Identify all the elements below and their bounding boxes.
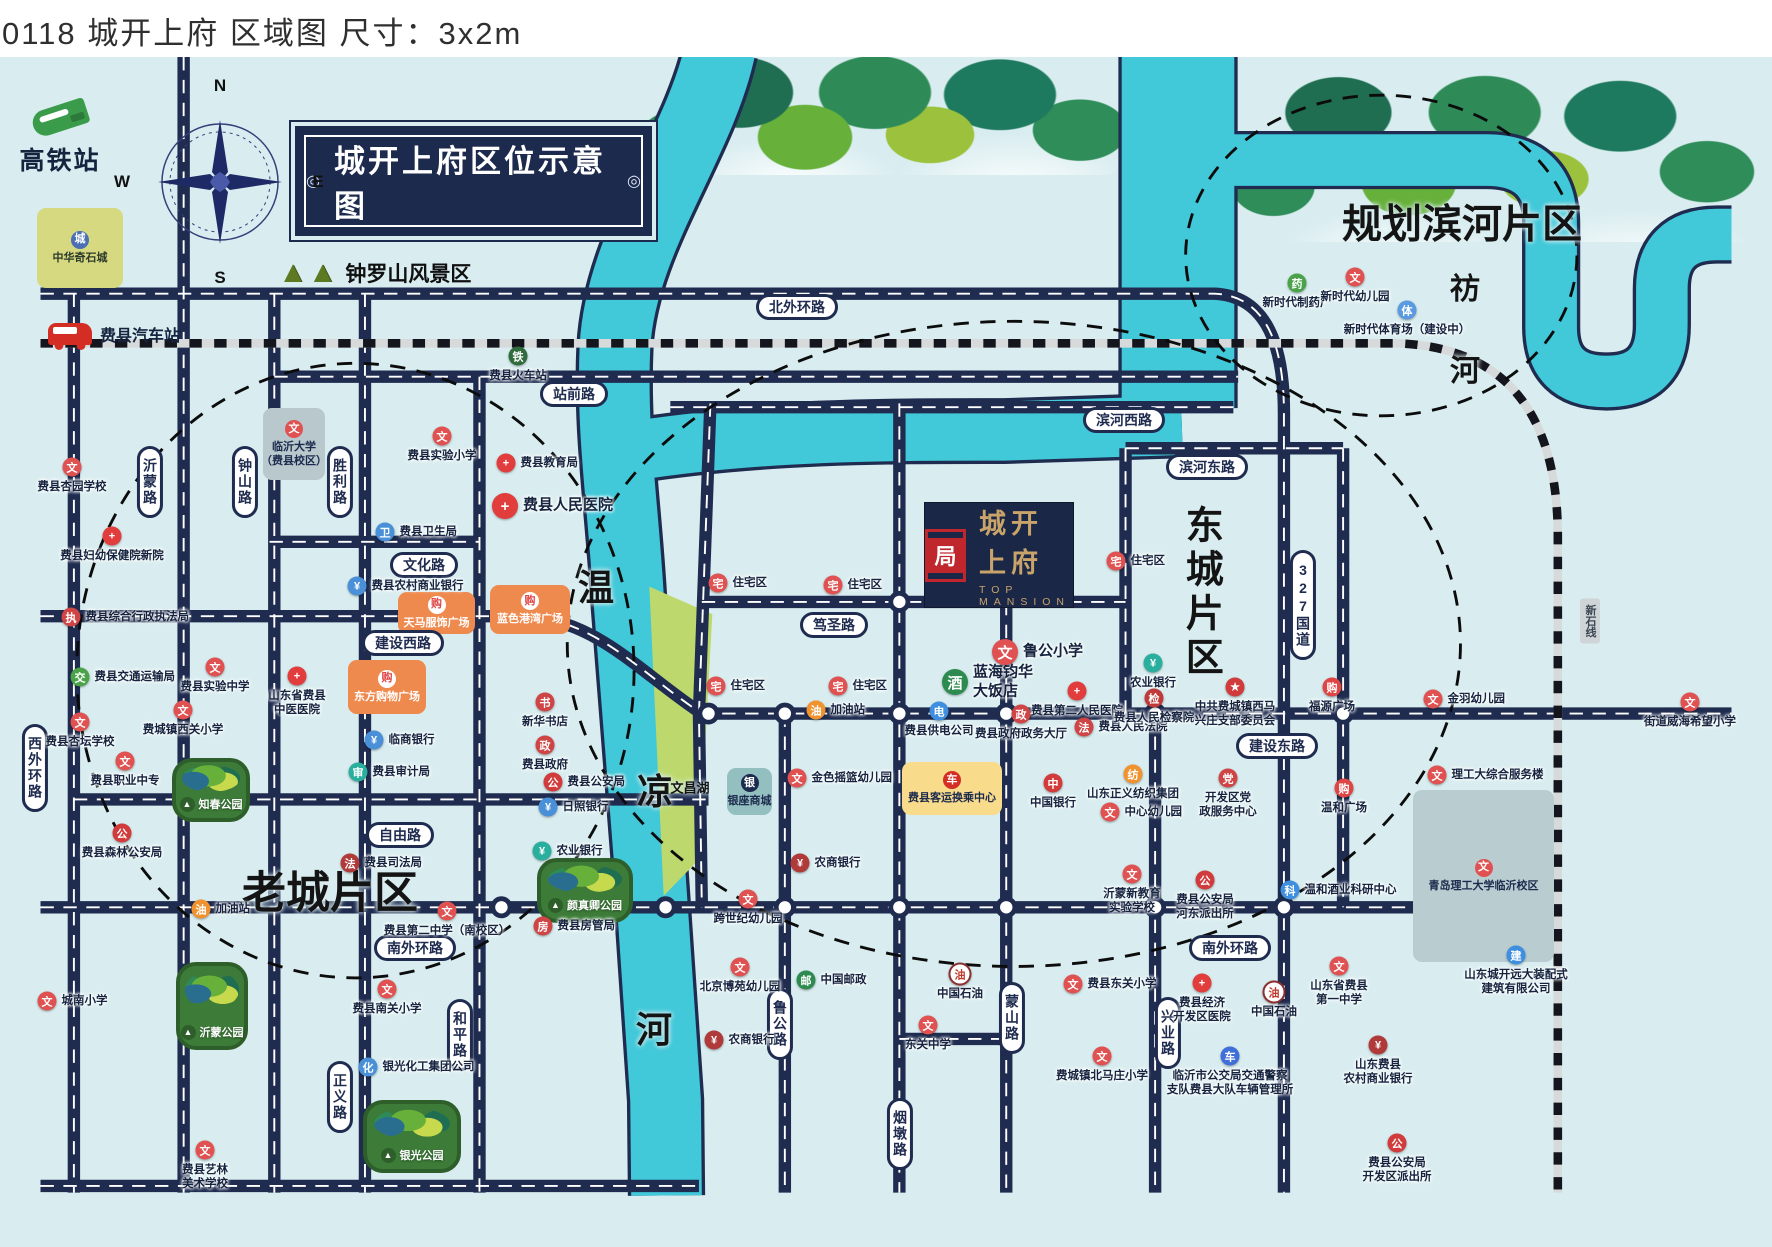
poi-label: 费县房管局	[558, 919, 616, 933]
region-label: 老城片区	[242, 868, 418, 917]
poi-school-icon: 文	[1428, 766, 1447, 785]
poster-canvas: ◎ 城开上府区位示意图 ◎ N S W E 高铁站	[0, 0, 1772, 1247]
poi-label: 费县人民检察院	[1114, 711, 1195, 725]
poi-teal-icon: ¥	[533, 842, 552, 861]
poi-label: 费县火车站	[489, 369, 547, 383]
project-logo: 局 城开上府 TOP MANSION	[925, 503, 1073, 607]
park-label: 颜真卿公园	[567, 897, 622, 913]
poi-label: 中国石油	[937, 987, 983, 1001]
landmark-label: 东方购物广场	[354, 691, 420, 704]
road-label-pill: 建设西路	[362, 630, 444, 656]
landmark-box: 文青岛理工大学临沂校区	[1413, 790, 1554, 962]
poi-label: 费城镇西关小学	[143, 723, 224, 737]
poi-hospital-icon: +	[492, 493, 518, 519]
road-label-pill: 胜利路	[327, 446, 353, 518]
poi-bankred-icon: ¥	[705, 1031, 724, 1050]
poi-label: 费县杏坛学校	[46, 735, 115, 749]
poi-pin-icon: 公	[113, 824, 132, 843]
poi-bankblue-icon: ¥	[539, 798, 558, 817]
compass-star-icon	[132, 94, 308, 270]
poi-label: 费县综合行政执法局	[86, 610, 190, 624]
poi-post-icon: 邮	[797, 971, 816, 990]
poi-label: 中心幼儿园	[1125, 805, 1183, 819]
park-label: 沂蒙公园	[200, 1024, 244, 1040]
poi-label: 北京博苑幼儿园	[700, 980, 781, 994]
road-node	[776, 705, 793, 722]
park-label: 银光公园	[400, 1147, 444, 1163]
poi-label: 加油站	[831, 703, 866, 717]
tree-icon: ▲	[181, 1025, 196, 1040]
poi-label: 费县第二中学（南校区）	[384, 924, 511, 938]
poi-govred-icon: 党	[1219, 769, 1238, 788]
poi-label: 费县实验中学	[181, 680, 250, 694]
coach-station: 费县汽车站	[48, 322, 180, 346]
poi-school-icon: 文	[992, 639, 1018, 665]
road-label-pill: 文化路	[390, 552, 458, 578]
poi-label: 中国银行	[1030, 796, 1076, 810]
map-area: ◎ 城开上府区位示意图 ◎ N S W E 高铁站	[0, 57, 1772, 1247]
poi-label: 费县农村商业银行	[372, 579, 464, 593]
poi-label: 山东省费县 第一中学	[1310, 979, 1368, 1008]
road-label-pill: 站前路	[540, 381, 608, 407]
poi-school-icon: 文	[1330, 957, 1349, 976]
poi-school-icon: 文	[1123, 865, 1142, 884]
poi-hospital-icon: +	[288, 667, 307, 686]
compass-w-label: W	[114, 172, 130, 192]
park: ▲知春公园	[172, 758, 250, 822]
region-label: 凉	[637, 772, 673, 812]
poi-cart-icon: 购	[1323, 678, 1342, 697]
poi-bankblue-icon: 化	[359, 1058, 378, 1077]
poi-teal-icon: 审	[349, 763, 368, 782]
poi-teal-icon: ¥	[1144, 654, 1163, 673]
poi-label: 新时代体育场（建设中）	[1344, 323, 1471, 337]
poi-label: 费城镇北马庄小学	[1056, 1069, 1148, 1083]
landmark-icon: 购	[521, 592, 539, 610]
poi-school-icon: 文	[174, 701, 193, 720]
road-label-pill: 327国道	[1290, 550, 1316, 660]
landmark-icon: 文	[285, 420, 303, 438]
road-node	[1275, 899, 1292, 916]
poi-school-icon: 文	[1093, 1047, 1112, 1066]
poi-label: 费县人民医院	[523, 497, 613, 516]
title-banner: ◎ 城开上府区位示意图 ◎	[295, 126, 652, 236]
poi-label: 农业银行	[557, 844, 603, 858]
road-node	[891, 593, 908, 610]
poi-label: 费县公安局 开发区派出所	[1363, 1156, 1432, 1185]
poi-bankred-icon: ¥	[1369, 1036, 1388, 1055]
landmark-label: 蓝色港湾广场	[497, 613, 563, 626]
road-label-pill: 滨河西路	[1083, 407, 1165, 433]
poi-school-icon: 文	[206, 658, 225, 677]
park-foliage-art	[182, 765, 241, 792]
poi-home-icon: 宅	[709, 574, 728, 593]
pine-trees-icon: ▲▲	[278, 258, 337, 288]
river-path	[1231, 160, 1731, 381]
landmark-icon: 城	[71, 231, 89, 249]
region-label: 文昌湖	[670, 782, 709, 797]
poi-label: 费县实验小学	[408, 449, 477, 463]
poi-label: 费县政府政务大厅	[975, 727, 1067, 741]
road-label-pill: 滨河东路	[1166, 454, 1248, 480]
road-label-pill: 烟墩路	[887, 1098, 913, 1170]
title-banner-frame: ◎ 城开上府区位示意图 ◎	[304, 135, 643, 227]
landmark-label: 青岛理工大学临沂校区	[1429, 880, 1539, 893]
poi-school-icon: 文	[1346, 268, 1365, 287]
landmark-label: 临沂大学 （费县校区）	[261, 441, 327, 467]
poi-hospital-icon: +	[497, 454, 516, 473]
banner-title: 城开上府区位示意图	[334, 136, 613, 226]
poi-label: 银光化工集团公司	[383, 1060, 475, 1074]
poi-label: 临商银行	[389, 733, 435, 747]
file-header: 0118 城开上府 区域图 尺寸：3x2m	[0, 0, 1772, 57]
poi-skater-icon: 体	[1398, 301, 1417, 320]
road-label-pill: 钟山路	[232, 446, 258, 518]
park: ▲银光公园	[363, 1100, 461, 1173]
road-label-pill: 建设东路	[1236, 733, 1318, 759]
poi-home-icon: 宅	[824, 576, 843, 595]
poi-label: 鲁公小学	[1023, 643, 1083, 662]
poi-school-icon: 文	[788, 769, 807, 788]
poi-school-icon: 文	[919, 1016, 938, 1035]
poi-label: 住宅区	[853, 679, 888, 693]
landmark-box: 文临沂大学 （费县校区）	[263, 408, 325, 480]
poi-gas-icon: 油	[807, 701, 826, 720]
poi-label: 蓝海钧华 大饭店	[973, 663, 1033, 701]
landmark-box: 购蓝色港湾广场	[490, 585, 570, 634]
poi-label: 费县公安局	[568, 775, 626, 789]
landmark-icon: 银	[741, 774, 759, 792]
poi-rail-icon: 铁	[509, 347, 528, 366]
poi-gas-icon: 油	[192, 900, 211, 919]
poi-label: 费县杏园学校	[38, 480, 107, 494]
coach-station-label: 费县汽车站	[100, 322, 180, 346]
poi-label: 费县司法局	[365, 856, 423, 870]
poi-govred-icon: 政	[536, 736, 555, 755]
landmark-box: 城中华奇石城	[37, 208, 123, 288]
poi-home-icon: 宅	[707, 677, 726, 696]
road-node	[891, 899, 908, 916]
landmark-icon: 车	[943, 771, 961, 789]
poi-label: 温和酒业科研中心	[1305, 883, 1397, 897]
region-label: 祊	[1450, 273, 1480, 307]
road-node	[493, 899, 510, 916]
poi-pin-icon: 公	[544, 773, 563, 792]
poi-school-icon: 文	[1424, 690, 1443, 709]
poi-oil-icon: 油	[1263, 981, 1286, 1004]
logo-cn-name: 城开上府	[979, 502, 1073, 580]
landmark-icon: 购	[378, 670, 396, 688]
poi-label: 跨世纪幼儿园	[714, 912, 783, 926]
road-node	[657, 899, 674, 916]
poi-green-icon: 交	[71, 668, 90, 687]
poi-label: 住宅区	[848, 578, 883, 592]
poi-bluetech-icon: 科	[1281, 881, 1300, 900]
landmark-label: 银座商城	[728, 795, 772, 808]
region-label: 东城片区	[1179, 505, 1222, 681]
poi-label: 温和广场	[1321, 801, 1367, 815]
banner-deco-right: ◎	[627, 171, 641, 191]
poi-label: 费县卫生局	[400, 525, 458, 539]
region-label: 规划滨河片区	[1342, 203, 1582, 248]
poi-label: 临沂市公交局交通警察 支队费县大队车辆管理所	[1167, 1069, 1294, 1098]
poi-label: 费县妇幼保健院新院	[60, 549, 164, 563]
poi-label: 费县森林公安局	[82, 846, 163, 860]
poi-label: 费县交通运输局	[95, 670, 176, 684]
poi-hospital-icon: +	[103, 527, 122, 546]
road-label-pill: 鲁公路	[767, 988, 793, 1060]
compass-e-label: E	[312, 172, 323, 192]
road-label-pill: 笃圣路	[800, 612, 868, 638]
poi-hotel-icon: 酒	[942, 669, 968, 695]
poi-bankred-icon: 法	[341, 854, 360, 873]
poi-govred-icon: 执	[62, 608, 81, 627]
poi-label: 开发区党 政服务中心	[1199, 791, 1257, 820]
poi-school-icon: 文	[116, 752, 135, 771]
scenic-area: ▲▲ 钟罗山风景区	[278, 258, 471, 288]
road-label-pill: 西外环路	[22, 724, 48, 812]
poi-label: 新华书店	[522, 715, 568, 729]
poi-label: 费县供电公司	[905, 724, 974, 738]
poi-school-icon: 文	[63, 458, 82, 477]
poi-cart-icon: 购	[1335, 779, 1354, 798]
poi-govred-icon: 房	[534, 917, 553, 936]
poi-green-icon: 药	[1288, 274, 1307, 293]
poi-label: 住宅区	[731, 679, 766, 693]
poi-govred-icon: 书	[536, 693, 555, 712]
poi-pin-icon: 公	[1196, 871, 1215, 890]
poi-label: 费县南关小学	[353, 1002, 422, 1016]
region-label: 河	[1450, 355, 1480, 389]
poi-star-icon: ★	[1226, 678, 1245, 697]
poi-label: 费县审计局	[373, 765, 431, 779]
poi-school-icon: 文	[38, 992, 57, 1011]
poi-govblue-icon: 卫	[376, 523, 395, 542]
road-label-pill: 北外环路	[756, 294, 838, 320]
landmark-icon: 文	[1475, 859, 1493, 877]
road-label-pill: 南外环路	[374, 935, 456, 961]
poi-bankblue-icon: ¥	[365, 731, 384, 750]
poi-label: 东关中学	[905, 1038, 951, 1052]
hsr-station-label: 高铁站	[14, 141, 106, 177]
tree-icon: ▲	[381, 1148, 396, 1163]
poi-bankred-icon: ¥	[791, 854, 810, 873]
road-label-pill: 蒙山路	[999, 982, 1025, 1054]
poi-label: 新时代幼儿园	[1321, 290, 1390, 304]
poi-hospital-icon: +	[1068, 682, 1087, 701]
poi-label: 费县艺林 美术学校	[182, 1163, 228, 1192]
poi-oil-icon: 油	[949, 963, 972, 986]
logo-en-name: TOP MANSION	[979, 584, 1073, 608]
logo-seal-icon: 局	[925, 529, 966, 582]
road-node	[700, 705, 717, 722]
poi-govred-icon: 政	[1012, 705, 1031, 724]
poi-govred-icon: 法	[1075, 718, 1094, 737]
poi-label: 沂蒙新教育 实验学校	[1103, 887, 1161, 916]
poi-pin-icon: 公	[1388, 1134, 1407, 1153]
compass-s-label: S	[214, 268, 225, 288]
poi-power-icon: 电	[930, 702, 949, 721]
compass-rose: N S W E	[132, 94, 308, 275]
poi-label: 中国邮政	[821, 973, 867, 987]
landmark-box: 购天马服饰广场	[398, 592, 475, 634]
landmark-box: 购东方购物广场	[348, 660, 426, 714]
poi-label: 街道威海希望小学	[1644, 715, 1736, 729]
poi-label: 费县职业中专	[91, 774, 160, 788]
poi-label: 金羽幼儿园	[1448, 692, 1506, 706]
poi-home-icon: 宅	[1107, 552, 1126, 571]
poi-label: 日照银行	[563, 800, 609, 814]
poi-court-icon: 检	[1145, 689, 1164, 708]
page-title: 0118 城开上府 区域图 尺寸：3x2m	[2, 8, 522, 53]
road-label-pill: 南外环路	[1189, 935, 1271, 961]
park-label: 知春公园	[199, 796, 243, 812]
poi-school-icon: 文	[433, 427, 452, 446]
poi-label: 城南小学	[62, 994, 108, 1008]
poi-label: 山东费县 农村商业银行	[1344, 1058, 1413, 1087]
poi-school-icon: 文	[196, 1141, 215, 1160]
road-node	[998, 899, 1015, 916]
park: ▲颜真卿公园	[537, 858, 633, 923]
landmark-box: 银银座商城	[727, 768, 772, 815]
tree-icon: ▲	[180, 797, 195, 812]
poi-boc-icon: 中	[1044, 774, 1063, 793]
poi-label: 中共费城镇西马 兴庄支部委员会	[1195, 700, 1276, 729]
region-label: 河	[636, 1010, 672, 1050]
poi-label: 费县第二人民医院	[1031, 704, 1123, 718]
poi-bluetech-icon: 建	[1507, 946, 1526, 965]
compass-n-label: N	[214, 76, 226, 96]
poi-label: 加油站	[216, 902, 251, 916]
scenic-area-label: 钟罗山风景区	[345, 258, 471, 288]
poi-busblue-icon: 车	[1221, 1047, 1240, 1066]
poi-school-icon: 文	[438, 902, 457, 921]
park-foliage-art	[374, 1108, 450, 1139]
poi-label: 费县经济 开发区医院	[1173, 996, 1231, 1025]
landmark-label: 费县客运换乘中心	[908, 792, 996, 805]
poi-school-icon: 文	[1101, 803, 1120, 822]
poi-orangeic-icon: 纺	[1124, 765, 1143, 784]
poi-label: 住宅区	[733, 576, 768, 590]
poi-label: 金色摇篮幼儿园	[812, 771, 893, 785]
poi-label: 山东城开远大装配式 建筑有限公司	[1464, 968, 1568, 997]
poi-school-icon: 文	[1681, 693, 1700, 712]
poi-label: 农商银行	[815, 856, 861, 870]
poi-school-icon: 文	[71, 713, 90, 732]
poi-label: 费县东关小学	[1088, 977, 1157, 991]
poi-school-icon: 文	[731, 958, 750, 977]
poi-label: 费县教育局	[521, 456, 579, 470]
poi-label: 费县政府	[522, 758, 568, 772]
landmark-box: 车费县客运换乘中心	[902, 762, 1002, 815]
bus-icon	[48, 323, 92, 345]
road-label-pill: 正义路	[327, 1061, 353, 1133]
poi-label: 住宅区	[1131, 554, 1166, 568]
poi-label: 农商银行	[729, 1033, 775, 1047]
poi-label: 山东正义纺织集团	[1087, 787, 1179, 801]
hsr-station: 高铁站	[14, 105, 106, 177]
road-label-pill: 沂蒙路	[137, 446, 163, 518]
poi-label: 中国石油	[1251, 1005, 1297, 1019]
road-node	[891, 705, 908, 722]
road-label-pill: 自由路	[366, 822, 434, 848]
poi-label: 理工大综合服务楼	[1452, 768, 1544, 782]
poi-school-icon: 文	[1064, 975, 1083, 994]
landmark-icon: 购	[428, 596, 446, 614]
landmark-label: 天马服饰广场	[404, 617, 470, 630]
poi-label: 福源广场	[1309, 700, 1355, 714]
park-foliage-art	[185, 971, 239, 1009]
tree-icon: ▲	[548, 898, 563, 913]
region-label: 温	[578, 568, 614, 608]
poi-hospital-icon: +	[1193, 974, 1212, 993]
landmark-label: 中华奇石城	[53, 252, 108, 265]
poi-school-icon: 文	[739, 890, 758, 909]
poi-label: 山东省费县 中医医院	[268, 689, 326, 718]
park: ▲沂蒙公园	[176, 962, 248, 1050]
poi-label: 费县公安局 河东派出所	[1176, 893, 1234, 922]
poi-bankblue-icon: ¥	[348, 577, 367, 596]
park-foliage-art	[548, 865, 622, 892]
poi-school-icon: 文	[378, 980, 397, 999]
rail-line-tag: 新石线	[1580, 599, 1600, 644]
poi-home-icon: 宅	[829, 677, 848, 696]
